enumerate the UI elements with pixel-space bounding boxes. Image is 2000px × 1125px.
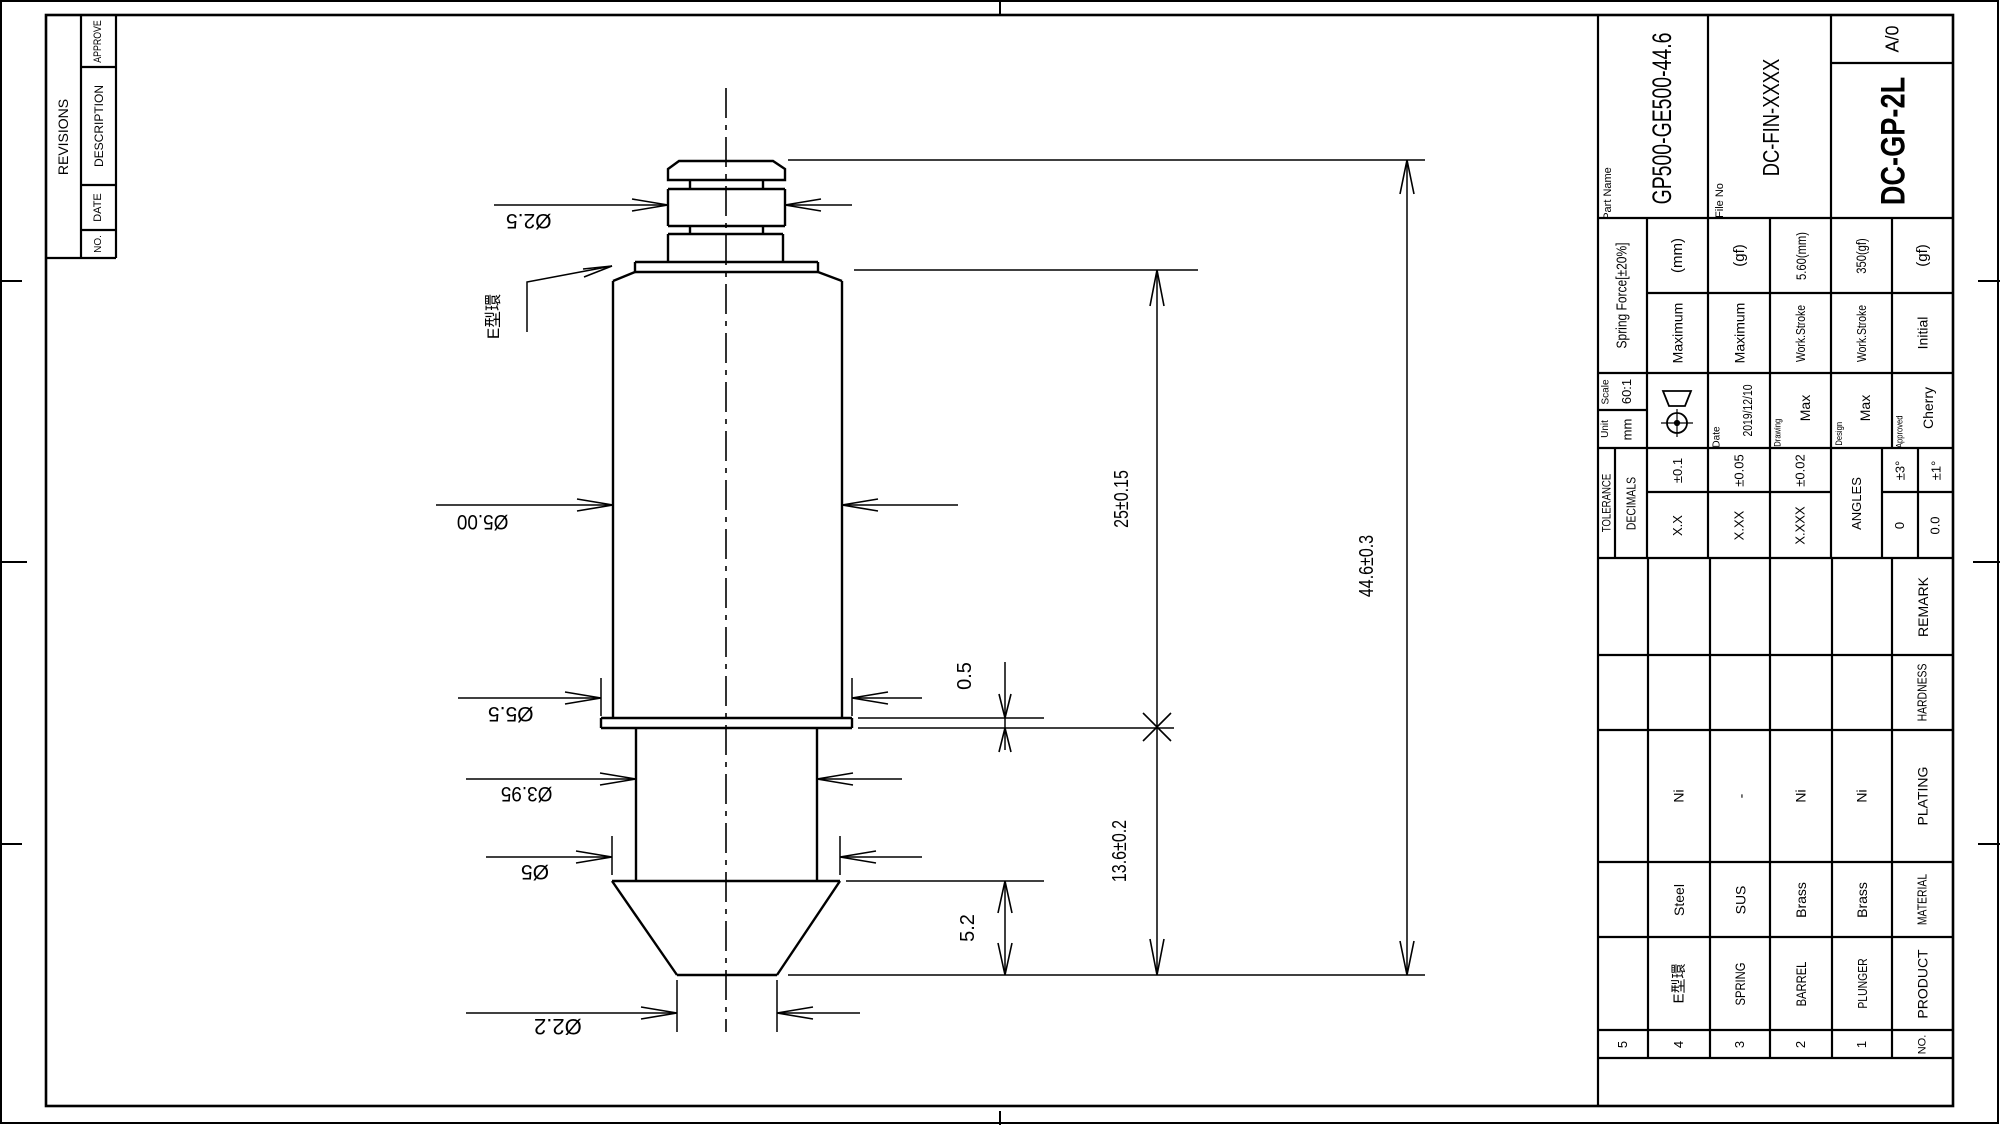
tol-label-2: X.XXX	[1770, 492, 1831, 558]
dim-total-length: 44.6±0.3	[1346, 518, 1388, 614]
spec-label-2: Work.Stroke	[1770, 293, 1831, 373]
spec-value-3: 350(gf)	[1831, 218, 1892, 293]
spec-value-4: (gf)	[1892, 218, 1953, 293]
part-row2-product: BARREL	[1770, 937, 1832, 1030]
dim-barrel-length: 25±0.15	[1103, 453, 1141, 545]
spec-value-2: 5.60(mm)	[1770, 218, 1831, 293]
parts-header-plating: PLATING	[1892, 730, 1953, 862]
part-row1-plating: Ni	[1832, 730, 1892, 862]
unit-label: Unit	[1598, 410, 1614, 448]
ering-callout: E型環	[474, 290, 514, 342]
tol-value-2: ±0.02	[1770, 448, 1831, 492]
part-row3-product: SPRING	[1710, 937, 1770, 1030]
approved-by: Cherry	[1912, 375, 1944, 441]
dim-dia-flange: Ø5.5	[474, 700, 548, 727]
date-value: 2019/12/10	[1732, 373, 1764, 448]
spec-label-1: Maximum	[1708, 293, 1770, 373]
tol-label-1: X.XX	[1708, 492, 1770, 558]
dim-dia-cone: Ø5	[514, 858, 556, 885]
spec-value-1: (gf)	[1708, 218, 1770, 293]
part-row4-plating: Ni	[1648, 730, 1710, 862]
dim-dia-plunger-top: Ø2.5	[494, 206, 564, 234]
angles-title: ANGLES	[1831, 448, 1882, 558]
dim-dia-tip: Ø2.2	[512, 1012, 604, 1039]
spec-label-3: Work.Stroke	[1831, 293, 1892, 373]
product-code-logo: DC-GP-2L	[1833, 63, 1953, 218]
part-row2-plating: Ni	[1770, 730, 1832, 862]
part-row5-no: 5	[1598, 1030, 1648, 1058]
dim-dia-barrel: Ø5.00	[436, 508, 530, 534]
part-row1-no: 1	[1832, 1030, 1892, 1058]
revisions-col-date: DATE	[81, 185, 116, 230]
revision-code: A/0	[1833, 15, 1953, 63]
tolerance-title: TOLERANCE	[1598, 448, 1615, 558]
decimals-title: DECIMALS	[1615, 448, 1647, 558]
dimension-lines	[436, 160, 1407, 1013]
part-row2-no: 2	[1770, 1030, 1832, 1058]
part-row3-no: 3	[1710, 1030, 1770, 1058]
part-row1-product: PLUNGER	[1832, 937, 1892, 1030]
tol-value-1: ±0.05	[1708, 448, 1770, 492]
dim-lower-length: 13.6±0.2	[1100, 804, 1140, 898]
revisions-col-no: NO.	[81, 230, 116, 258]
design-label: Design	[1833, 420, 1846, 448]
extension-lines	[601, 160, 1425, 1032]
parts-header-material: MATERIAL	[1892, 862, 1953, 937]
tol-label-0: X.X	[1647, 492, 1708, 558]
revisions-title: REVISIONS	[46, 15, 81, 258]
part-row3-material: SUS	[1710, 862, 1770, 937]
spec-label-4: Initial	[1892, 293, 1953, 373]
part-row3-plating: -	[1710, 730, 1770, 862]
angle-value-0: ±3°	[1882, 448, 1918, 492]
parts-header-hardness: HARDNESS	[1892, 655, 1953, 730]
third-angle-projection-icon	[1661, 391, 1693, 437]
part-row1-material: Brass	[1832, 862, 1892, 937]
design-by: Max	[1850, 378, 1880, 438]
drawing-by: Max	[1790, 378, 1820, 438]
parts-header-remark: REMARK	[1892, 558, 1953, 655]
tol-value-0: ±0.1	[1647, 448, 1708, 492]
part-row4-product: E型環	[1648, 937, 1710, 1030]
unit-value: mm	[1614, 410, 1640, 448]
dim-dia-lower-barrel: Ø3.95	[490, 780, 564, 807]
parts-header-product: PRODUCT	[1892, 937, 1953, 1030]
part-row2-material: Brass	[1770, 862, 1832, 937]
scale-value: 60:1	[1614, 373, 1640, 410]
revisions-col-approve: APPROVE	[81, 15, 116, 67]
file-no-value: DC-FIN-XXXX	[1714, 17, 1829, 217]
spec-label-0: Maximum	[1647, 293, 1708, 373]
dim-flange-thickness: 0.5	[946, 648, 984, 704]
angle-value-1: ±1°	[1918, 448, 1953, 492]
revisions-col-description: DESCRIPTION	[81, 67, 116, 185]
spec-value-0: (mm)	[1647, 218, 1708, 293]
spring-force-title: Spring Force[±20%]	[1598, 218, 1647, 373]
part-row4-no: 4	[1648, 1030, 1710, 1058]
dim-cone-length: 5.2	[948, 899, 988, 957]
angle-label-0: 0	[1882, 492, 1918, 558]
angle-label-1: 0.0	[1918, 492, 1953, 558]
drawing-label: Drawing	[1772, 418, 1785, 448]
approved-label: Approved	[1894, 416, 1907, 448]
part-name-value: GP500-GE500-44.6	[1612, 18, 1712, 218]
drawing-sheet: REVISIONS APPROVE DESCRIPTION DATE NO. P…	[0, 0, 2000, 1125]
part-row4-material: Steel	[1648, 862, 1710, 937]
dimension-arrows	[565, 160, 1414, 1019]
scale-label: Scale	[1598, 373, 1614, 410]
date-label: Date	[1710, 425, 1725, 448]
parts-header-no: NO.	[1892, 1030, 1953, 1058]
